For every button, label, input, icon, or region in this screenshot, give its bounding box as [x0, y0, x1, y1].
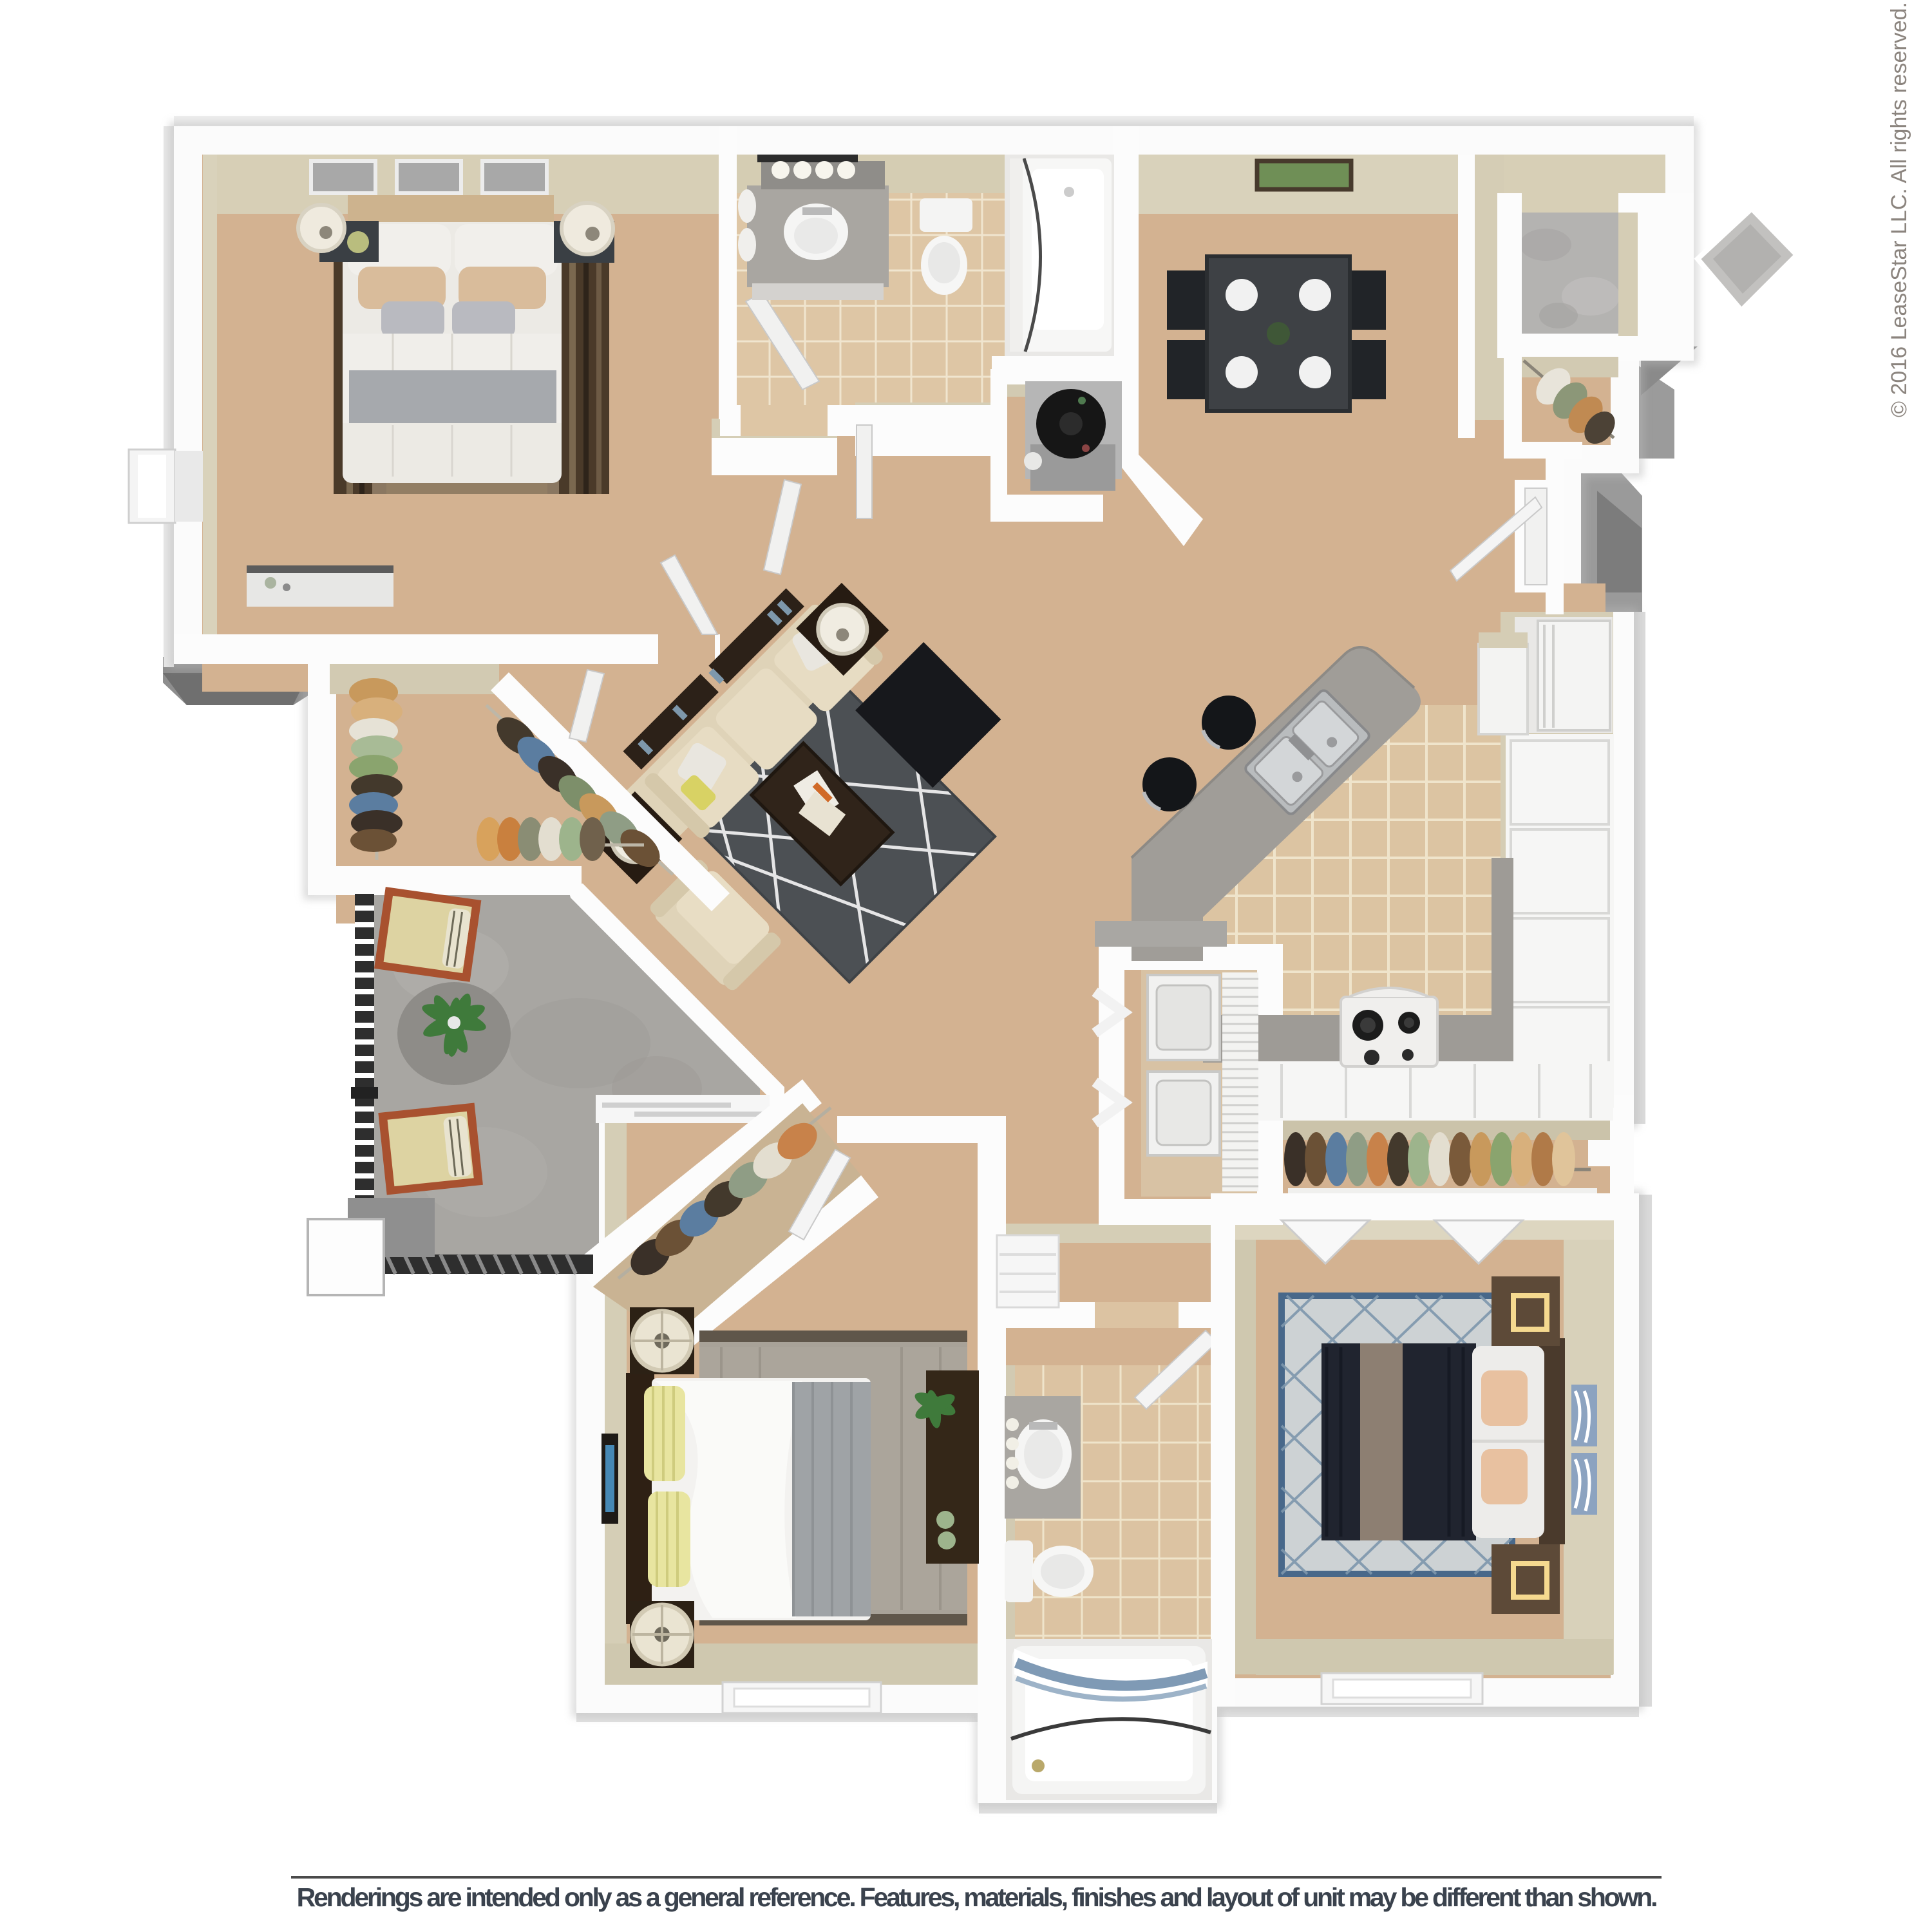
- svg-text:Renderings are intended only a: Renderings are intended only as a genera…: [297, 1882, 1657, 1912]
- svg-text:© 2016 LeaseStar LLC. All righ: © 2016 LeaseStar LLC. All rights reserve…: [1887, 2, 1911, 417]
